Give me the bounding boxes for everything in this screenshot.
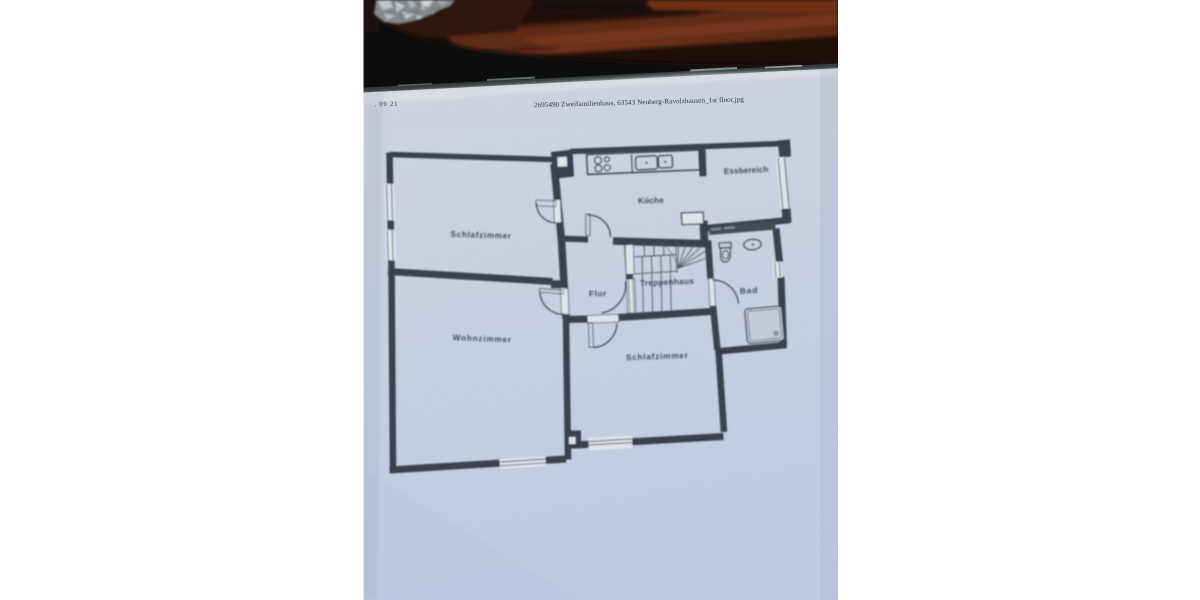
svg-text:Schlafzimmer: Schlafzimmer: [450, 230, 512, 241]
svg-text:Flur: Flur: [589, 289, 607, 298]
svg-text:Bad: Bad: [740, 286, 758, 296]
svg-text:Küche: Küche: [638, 196, 664, 205]
svg-text:. 09 21: . 09 21: [374, 101, 397, 109]
